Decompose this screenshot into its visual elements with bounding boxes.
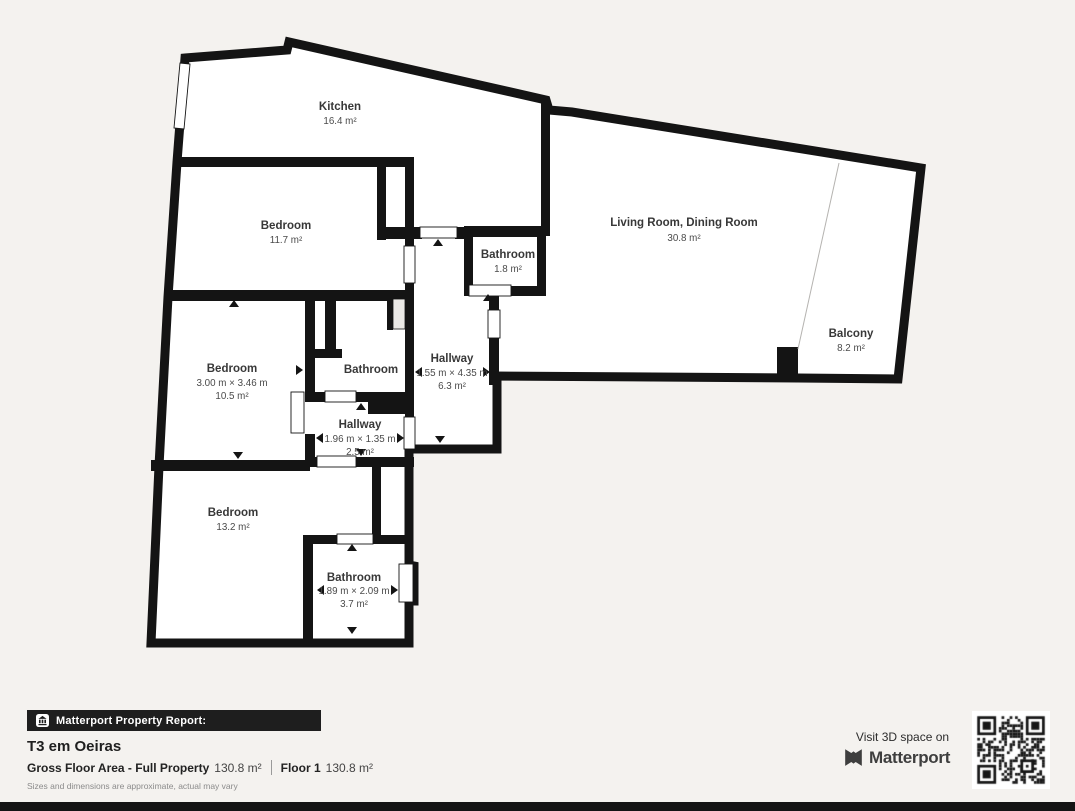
exterior-walls (151, 42, 921, 643)
svg-text:Hallway: Hallway (339, 419, 382, 431)
svg-text:1.89 m × 2.09 m: 1.89 m × 2.09 m (318, 586, 389, 597)
svg-text:Balcony: Balcony (829, 328, 874, 340)
svg-text:11.7 m²: 11.7 m² (270, 235, 303, 246)
svg-text:1.96 m × 1.35 m: 1.96 m × 1.35 m (324, 434, 395, 445)
matterport-wordmark: Matterport (869, 748, 950, 768)
svg-text:1.8 m²: 1.8 m² (494, 264, 523, 275)
svg-text:Bathroom: Bathroom (327, 572, 381, 584)
svg-text:Living Room, Dining Room: Living Room, Dining Room (610, 217, 758, 229)
svg-text:Bedroom: Bedroom (208, 507, 258, 519)
svg-text:2.5 m²: 2.5 m² (346, 447, 375, 458)
building-icon (36, 714, 49, 727)
svg-text:1.55 m × 4.35 m: 1.55 m × 4.35 m (416, 368, 487, 379)
svg-text:3.00 m × 3.46 m: 3.00 m × 3.46 m (196, 378, 267, 389)
svg-text:16.4 m²: 16.4 m² (323, 116, 357, 127)
svg-text:Kitchen: Kitchen (319, 101, 361, 113)
svg-text:13.2 m²: 13.2 m² (216, 522, 250, 533)
disclaimer-text: Sizes and dimensions are approximate, ac… (27, 781, 238, 791)
air-shaft (393, 299, 405, 329)
report-banner: Matterport Property Report: (27, 710, 321, 731)
svg-text:Bedroom: Bedroom (261, 220, 311, 232)
area-summary: Gross Floor Area - Full Property 130.8 m… (27, 760, 373, 775)
svg-text:Bathroom: Bathroom (344, 364, 398, 376)
svg-text:6.3 m²: 6.3 m² (438, 381, 467, 392)
gross-floor-area-label: Gross Floor Area - Full Property (27, 761, 209, 775)
bottom-bar (0, 802, 1075, 811)
svg-text:Bedroom: Bedroom (207, 363, 257, 375)
property-title: T3 em Oeiras (27, 738, 121, 755)
floor-value: 130.8 m² (326, 761, 373, 775)
qr-code (972, 711, 1050, 789)
matterport-logo-icon (843, 747, 864, 768)
svg-text:8.2 m²: 8.2 m² (837, 343, 866, 354)
svg-text:Hallway: Hallway (431, 353, 474, 365)
svg-text:3.7 m²: 3.7 m² (340, 599, 369, 610)
svg-text:30.8 m²: 30.8 m² (667, 233, 701, 244)
svg-text:10.5 m²: 10.5 m² (215, 391, 249, 402)
divider (271, 760, 272, 775)
floor-plan: Kitchen 16.4 m² Bedroom 11.7 m² Bathroom… (0, 0, 1075, 802)
gross-floor-area-value: 130.8 m² (214, 761, 261, 775)
matterport-brand: Matterport (843, 747, 950, 768)
room-label-bathroom-2: Bathroom (344, 364, 398, 376)
svg-text:Bathroom: Bathroom (481, 249, 535, 261)
floor-label: Floor 1 (281, 761, 321, 775)
report-banner-label: Matterport Property Report: (56, 715, 206, 727)
visit-3d-cta: Visit 3D space on (845, 730, 960, 744)
